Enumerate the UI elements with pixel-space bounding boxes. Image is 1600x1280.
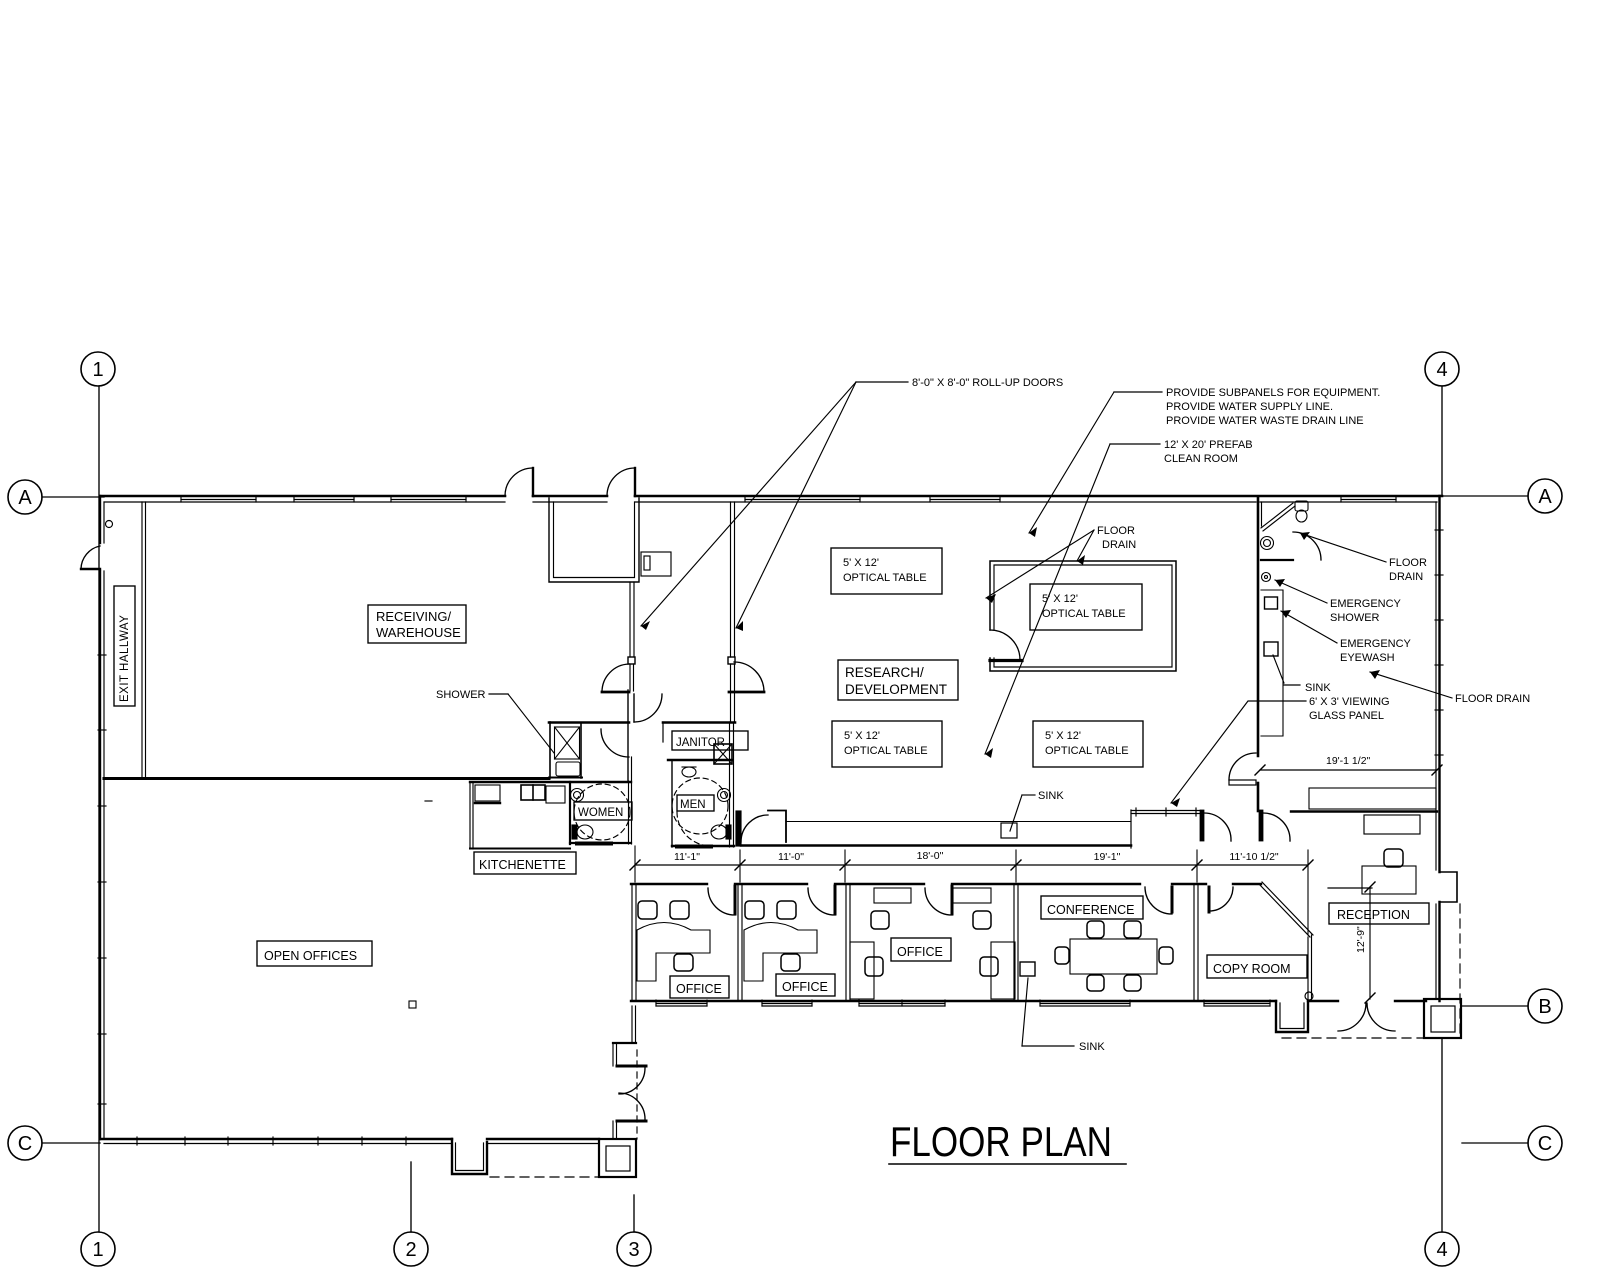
svg-text:OFFICE: OFFICE — [897, 945, 943, 959]
svg-text:PROVIDE WATER WASTE DRAIN LINE: PROVIDE WATER WASTE DRAIN LINE — [1166, 415, 1364, 427]
svg-text:5' X 12': 5' X 12' — [1045, 730, 1081, 742]
svg-text:EMERGENCY: EMERGENCY — [1330, 598, 1402, 610]
svg-text:8'-0" X 8'-0" ROLL-UP DOORS: 8'-0" X 8'-0" ROLL-UP DOORS — [912, 377, 1063, 389]
svg-text:FLOOR PLAN: FLOOR PLAN — [890, 1118, 1112, 1165]
svg-text:OPEN OFFICES: OPEN OFFICES — [264, 949, 357, 963]
svg-text:PROVIDE SUBPANELS FOR EQUIPMEN: PROVIDE SUBPANELS FOR EQUIPMENT. — [1166, 387, 1380, 399]
svg-text:OPTICAL TABLE: OPTICAL TABLE — [844, 745, 928, 757]
svg-text:WOMEN: WOMEN — [578, 807, 623, 819]
svg-text:1: 1 — [92, 359, 103, 381]
svg-text:SINK: SINK — [1038, 790, 1064, 802]
svg-text:C: C — [1538, 1133, 1552, 1155]
svg-text:11'-1": 11'-1" — [674, 851, 700, 863]
svg-text:12'-9": 12'-9" — [1355, 926, 1367, 953]
svg-text:19'-1 1/2": 19'-1 1/2" — [1326, 755, 1371, 767]
svg-text:3: 3 — [628, 1239, 639, 1261]
svg-text:SINK: SINK — [1305, 682, 1331, 694]
svg-text:MEN: MEN — [680, 799, 706, 811]
svg-text:C: C — [18, 1133, 32, 1155]
svg-text:DRAIN: DRAIN — [1102, 539, 1136, 551]
svg-text:DEVELOPMENT: DEVELOPMENT — [845, 682, 947, 697]
svg-text:RECEIVING/: RECEIVING/ — [376, 609, 452, 624]
svg-text:A: A — [1538, 486, 1552, 508]
svg-text:FLOOR: FLOOR — [1389, 557, 1427, 569]
svg-text:OFFICE: OFFICE — [782, 980, 828, 994]
svg-text:2: 2 — [405, 1239, 416, 1261]
svg-text:11'-10 1/2": 11'-10 1/2" — [1229, 851, 1279, 863]
svg-text:SHOWER: SHOWER — [436, 689, 486, 701]
svg-text:CONFERENCE: CONFERENCE — [1047, 903, 1135, 917]
svg-text:B: B — [1538, 996, 1551, 1018]
svg-text:11'-0": 11'-0" — [778, 851, 804, 863]
svg-text:FLOOR: FLOOR — [1097, 525, 1135, 537]
svg-text:WAREHOUSE: WAREHOUSE — [376, 625, 461, 640]
svg-text:18'-0": 18'-0" — [917, 850, 944, 862]
svg-text:PROVIDE WATER SUPPLY LINE.: PROVIDE WATER SUPPLY LINE. — [1166, 401, 1333, 413]
svg-text:SINK: SINK — [1079, 1041, 1105, 1053]
svg-text:4: 4 — [1436, 1239, 1447, 1261]
svg-text:RECEPTION: RECEPTION — [1337, 908, 1410, 922]
svg-text:OPTICAL TABLE: OPTICAL TABLE — [1042, 608, 1126, 620]
svg-text:RESEARCH/: RESEARCH/ — [845, 665, 924, 680]
svg-text:DRAIN: DRAIN — [1389, 571, 1423, 583]
svg-text:EYEWASH: EYEWASH — [1340, 652, 1395, 664]
svg-text:SHOWER: SHOWER — [1330, 612, 1380, 624]
svg-text:OFFICE: OFFICE — [676, 982, 722, 996]
svg-text:A: A — [18, 487, 32, 509]
svg-text:JANITOR: JANITOR — [676, 737, 725, 749]
svg-text:5' X 12': 5' X 12' — [844, 730, 880, 742]
svg-text:5' X 12': 5' X 12' — [843, 557, 879, 569]
svg-text:KITCHENETTE: KITCHENETTE — [479, 858, 566, 872]
svg-text:OPTICAL TABLE: OPTICAL TABLE — [1045, 745, 1129, 757]
svg-text:12' X 20' PREFAB: 12' X 20' PREFAB — [1164, 439, 1253, 451]
svg-text:COPY ROOM: COPY ROOM — [1213, 962, 1291, 976]
svg-text:EXIT HALLWAY: EXIT HALLWAY — [119, 615, 131, 702]
svg-text:CLEAN ROOM: CLEAN ROOM — [1164, 453, 1238, 465]
svg-text:OPTICAL TABLE: OPTICAL TABLE — [843, 572, 927, 584]
svg-text:19'-1": 19'-1" — [1094, 851, 1121, 863]
svg-text:GLASS PANEL: GLASS PANEL — [1309, 710, 1384, 722]
svg-text:EMERGENCY: EMERGENCY — [1340, 638, 1412, 650]
svg-text:6' X 3' VIEWING: 6' X 3' VIEWING — [1309, 696, 1390, 708]
svg-text:4: 4 — [1436, 359, 1447, 381]
svg-text:FLOOR DRAIN: FLOOR DRAIN — [1455, 693, 1530, 705]
svg-text:1: 1 — [92, 1239, 103, 1261]
